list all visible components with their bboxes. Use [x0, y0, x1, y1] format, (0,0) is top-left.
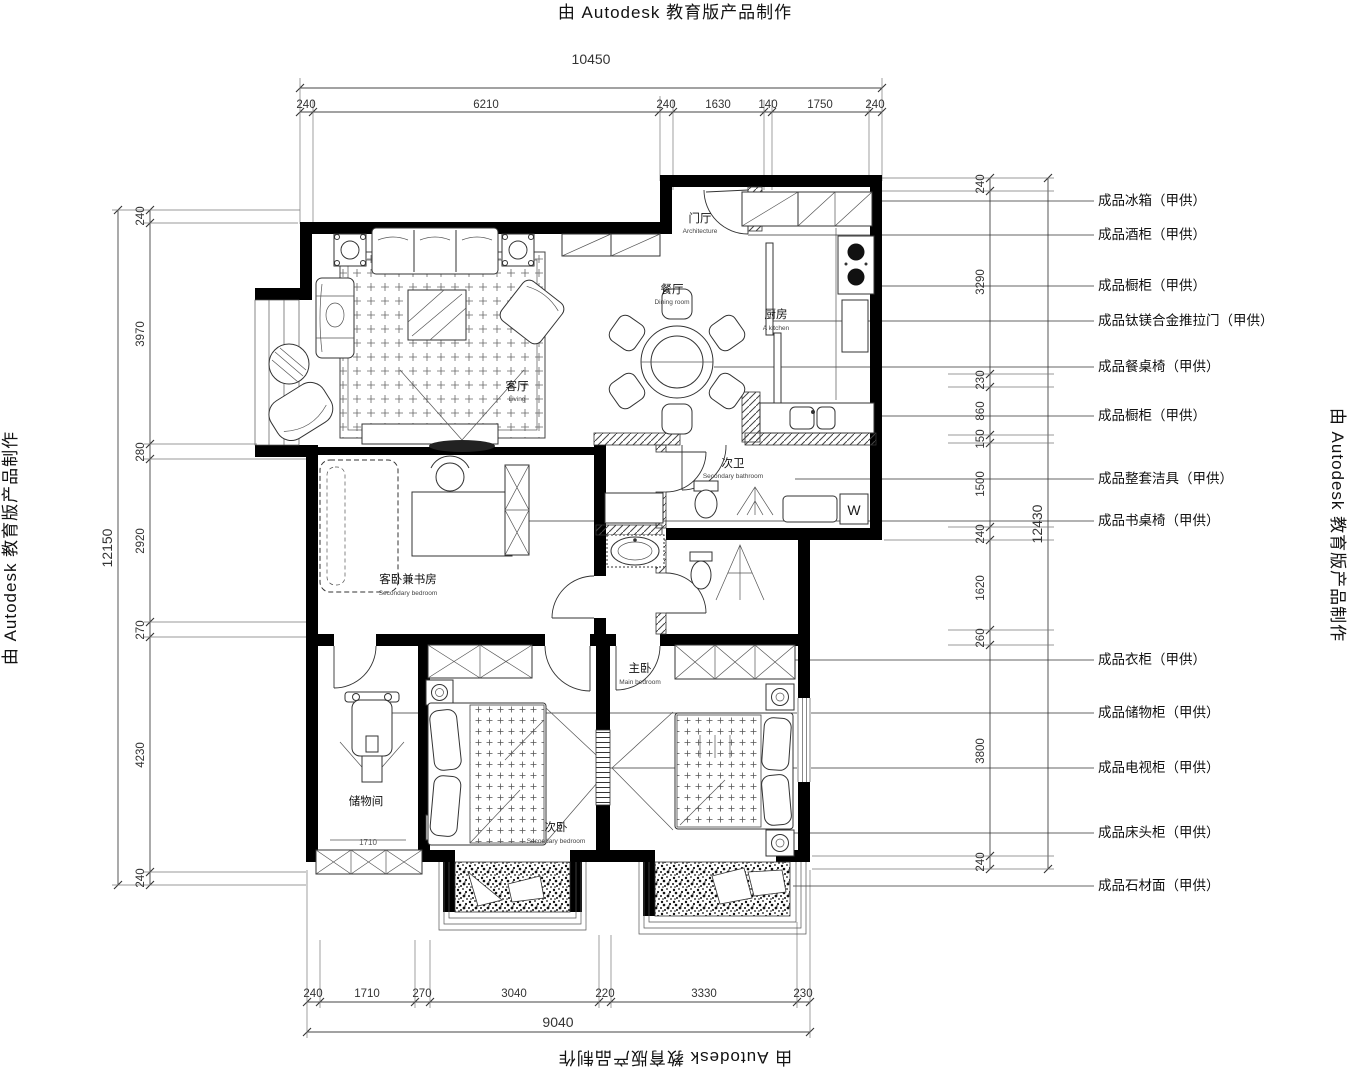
- sofa-bed: [320, 460, 398, 592]
- curved-chair: [263, 376, 339, 446]
- storage-room: 储物间 1710: [330, 692, 406, 847]
- sofa-three-seat: [372, 228, 498, 274]
- toilet-lower: [690, 552, 712, 589]
- washer-label: W: [847, 502, 861, 518]
- callout-cabinet-upper: 成品橱柜（甲供）: [1098, 278, 1206, 293]
- study-door: [552, 576, 594, 618]
- pillow: [761, 774, 792, 826]
- dim-right-seg: 240: [975, 852, 987, 871]
- dim-left-seg: 240: [135, 206, 147, 225]
- dim-bottom-seg: 3330: [691, 988, 717, 1000]
- bathroom-2: W 次卫 Secondary bathroom: [694, 456, 868, 524]
- room-label-storage: 储物间: [349, 794, 384, 808]
- master-nightstand-bottom: [766, 830, 794, 856]
- room-label-bed2: 次卧: [545, 820, 568, 834]
- dim-top-seg: 6210: [473, 99, 499, 111]
- tv-niche: [596, 730, 610, 805]
- rug: [340, 252, 545, 438]
- dim-top-seg: 1750: [807, 99, 833, 111]
- callout-tv-cabinet: 成品电视柜（甲供）: [1098, 760, 1220, 775]
- room-label-study: 客卧兼书房: [379, 572, 437, 586]
- title-left: 由 Autodesk 教育版产品制作: [1, 431, 20, 665]
- dim-bottom-seg: 230: [793, 988, 812, 1000]
- dim-left-seg: 4230: [135, 742, 147, 768]
- dim-bottom-seg: 270: [412, 988, 431, 1000]
- master-nightstand-top: [766, 684, 794, 710]
- dim-right-seg: 860: [975, 401, 987, 420]
- dining-room: 餐厅 Dining room: [606, 282, 748, 434]
- room-label-dining-en: Dining room: [654, 299, 689, 306]
- side-table-right: [502, 234, 534, 266]
- toilet: [694, 481, 718, 518]
- callout-stone-surface: 成品石材面（甲供）: [1098, 878, 1220, 893]
- dim-right-seg: 240: [975, 174, 987, 193]
- shower-tray: [605, 493, 663, 523]
- room-label-bath2-en: Secondary bathroom: [703, 473, 763, 480]
- dim-right-seg: 3800: [975, 738, 987, 764]
- bed2-door: [545, 646, 590, 691]
- balcony-right: [639, 862, 806, 934]
- dim-right-overall: 12430: [1029, 504, 1045, 543]
- master-bed: [675, 713, 793, 829]
- bed2: [428, 703, 546, 845]
- storage-door: [334, 646, 376, 688]
- dim-left-overall: 12150: [99, 528, 115, 567]
- dim-bottom-seg: 220: [595, 988, 614, 1000]
- room-label-bed2-en: Secondary bedroom: [527, 838, 586, 845]
- shower-lower: [716, 545, 764, 600]
- storage-width-dim: 1710: [359, 838, 377, 847]
- room-label-kitchen: 厨房: [765, 308, 788, 321]
- coffee-table: [408, 290, 466, 340]
- master-bedroom-window: [797, 698, 811, 782]
- dim-top-seg: 240: [296, 99, 315, 111]
- washing-machine: W: [840, 494, 868, 524]
- dim-right-seg: 240: [975, 524, 987, 543]
- dim-bottom-seg: 1710: [354, 988, 380, 1000]
- room-label-bath2: 次卫: [722, 456, 745, 470]
- washbasin: [607, 535, 664, 567]
- dim-top-seg: 240: [656, 99, 675, 111]
- balconies: [439, 862, 806, 934]
- room-label-living-en: Living: [509, 396, 526, 403]
- dim-left-seg: 3970: [135, 321, 147, 347]
- callout-storage-cabinet: 成品储物柜（甲供）: [1098, 705, 1220, 720]
- callout-nightstand: 成品床头柜（甲供）: [1098, 825, 1220, 840]
- room-label-master-en: Main bedroom: [619, 679, 661, 686]
- sliding-door: [766, 243, 781, 425]
- dim-bottom-overall: 9040: [542, 1014, 573, 1030]
- balcony-left: [439, 862, 586, 930]
- floorplan-page: 由 Autodesk 教育版产品制作 由 Autodesk 教育版产品制作 由 …: [0, 0, 1350, 1080]
- master-bedroom: 主卧 Main bedroom: [546, 645, 795, 856]
- corridor-and-lower-bath: [605, 493, 764, 600]
- dim-left-seg: 280: [135, 442, 147, 461]
- bed2-wardrobe: [428, 645, 532, 678]
- callout-cabinet-lower: 成品橱柜（甲供）: [1098, 408, 1206, 423]
- bedroom-2: 次卧 Secondary bedroom: [426, 645, 585, 845]
- dim-right-seg: 1500: [975, 471, 987, 497]
- dim-top-seg: 140: [758, 99, 777, 111]
- pillow: [761, 717, 792, 771]
- callout-desk-chair: 成品书桌椅（甲供）: [1098, 513, 1220, 528]
- room-label-kitchen-en: A kitchen: [763, 325, 790, 332]
- room-label-dining: 餐厅: [661, 282, 684, 296]
- dim-bottom-seg: 240: [303, 988, 322, 1000]
- callout-dining-set: 成品餐桌椅（甲供）: [1098, 359, 1220, 374]
- room-label-entry-en: Architecture: [683, 228, 718, 235]
- dim-right-seg: 3290: [975, 269, 987, 295]
- master-wardrobe: [675, 645, 795, 679]
- dim-left-seg: 270: [135, 620, 147, 639]
- callout-sanitary: 成品整套洁具（甲供）: [1098, 471, 1233, 486]
- dim-top-seg: 1630: [705, 99, 731, 111]
- fitness-machine: [340, 692, 404, 782]
- dim-right-seg: 1620: [975, 575, 987, 601]
- bed2-nightstand-top: [426, 680, 453, 705]
- pillow: [429, 775, 461, 837]
- title-bottom: 由 Autodesk 教育版产品制作: [558, 1048, 792, 1067]
- study-wardrobe: [505, 465, 529, 555]
- dim-top-overall: 10450: [572, 51, 611, 67]
- floorplan-drawing: 由 Autodesk 教育版产品制作 由 Autodesk 教育版产品制作 由 …: [0, 0, 1350, 1080]
- room-label-master: 主卧: [629, 662, 652, 675]
- title-top: 由 Autodesk 教育版产品制作: [558, 3, 792, 22]
- room-label-study-en: Secondary bedroom: [379, 590, 438, 597]
- dim-left-seg: 2920: [135, 528, 147, 554]
- kitchen-sink: [760, 403, 874, 433]
- dim-right-seg: 230: [975, 370, 987, 389]
- entry-hall: 门厅 Architecture: [562, 211, 718, 256]
- study-room: 客卧兼书房 Secondary bedroom: [320, 456, 529, 597]
- callout-sliding-door: 成品钛镁合金推拉门（甲供）: [1098, 313, 1274, 328]
- dim-bottom-seg: 3040: [501, 988, 527, 1000]
- round-side-plant: [269, 344, 309, 384]
- room-label-living: 客厅: [506, 379, 529, 393]
- dim-right-seg: 150: [975, 429, 987, 448]
- stove: [838, 236, 874, 294]
- dim-right-seg: 260: [975, 628, 987, 647]
- callout-fridge: 成品冰箱（甲供）: [1098, 193, 1206, 208]
- storage-window: [316, 850, 422, 874]
- callout-wine-cabinet: 成品酒柜（甲供）: [1098, 227, 1206, 242]
- room-label-entry: 门厅: [689, 211, 712, 225]
- desk-chair: [431, 456, 469, 491]
- dim-left: 12150 240 3970 280 2920 270 4230 240: [99, 206, 306, 889]
- pillow: [429, 709, 462, 771]
- dim-top-seg: 240: [865, 99, 884, 111]
- desk: [412, 492, 512, 556]
- callout-wardrobe: 成品衣柜（甲供）: [1098, 652, 1206, 667]
- side-table-left: [334, 234, 366, 266]
- shower: [737, 487, 773, 515]
- bath-counter: [783, 496, 837, 522]
- tv: [429, 440, 495, 452]
- dim-left-seg: 240: [135, 868, 147, 887]
- title-right: 由 Autodesk 教育版产品制作: [1328, 408, 1347, 642]
- chaise-sofa: [316, 278, 354, 358]
- kitchen-island: [842, 300, 868, 352]
